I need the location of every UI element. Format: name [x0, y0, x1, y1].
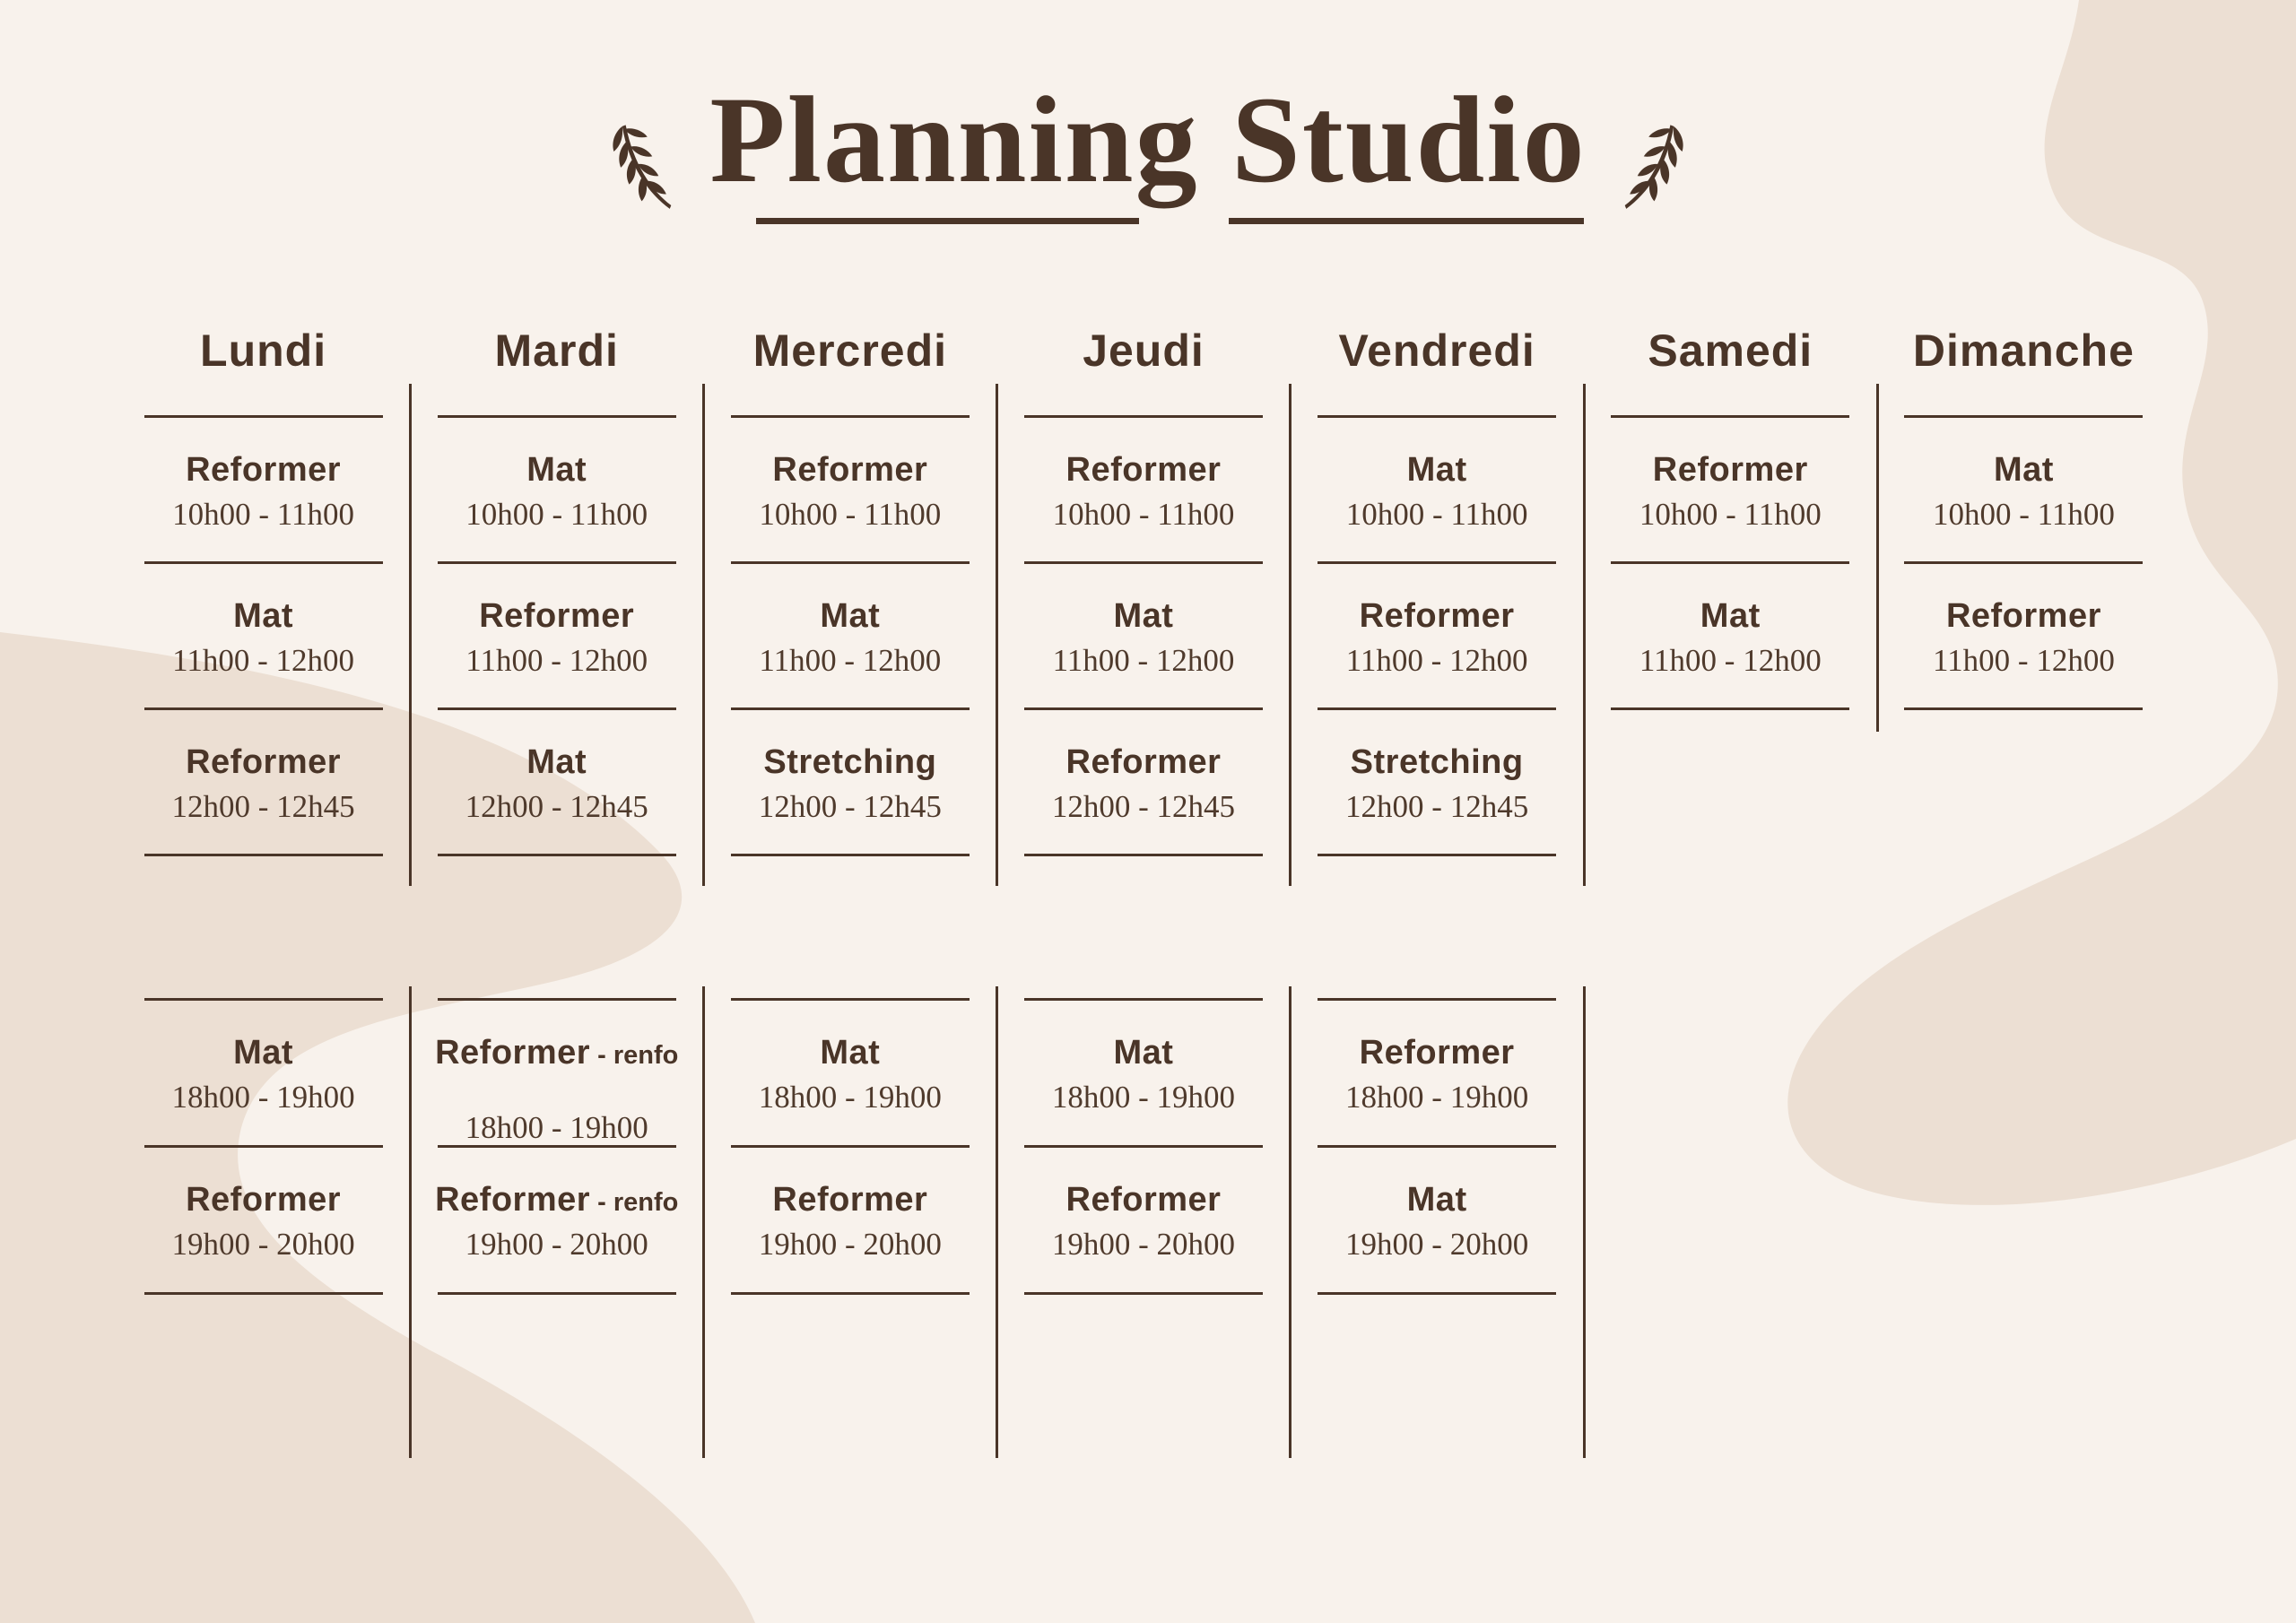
day-header-mardi: Mardi — [410, 325, 703, 377]
session-name: Reformer — [1946, 597, 2101, 635]
session-name-line: Reformer - renfo — [410, 1031, 703, 1074]
session-block: Mat11h00 - 12h00 — [703, 564, 996, 707]
session-name: Reformer — [1360, 1034, 1515, 1072]
session-block: Mat18h00 - 19h00 — [703, 1001, 996, 1145]
session-time: 11h00 - 12h00 — [1291, 641, 1584, 681]
session-name-suffix: - renfo — [590, 1041, 678, 1070]
session-name: Reformer — [772, 451, 927, 489]
session-name: Mat — [1994, 451, 2054, 489]
session-time: 10h00 - 11h00 — [703, 495, 996, 534]
day-column: Mat18h00 - 19h00Reformer19h00 - 20h00 — [703, 998, 996, 1295]
session-time: 11h00 - 12h00 — [117, 641, 410, 681]
planning-poster: Planning Studio LundiMardiMercrediJeudiV… — [0, 0, 2296, 1623]
session-name: Reformer — [186, 451, 341, 489]
day-column: Mat10h00 - 11h00Reformer11h00 - 12h00 — [1877, 415, 2170, 856]
separator-line — [731, 1292, 970, 1295]
day-header-mercredi: Mercredi — [703, 325, 996, 377]
separator-line — [438, 1292, 676, 1295]
session-name-line: Mat — [410, 448, 703, 491]
day-column: Mat18h00 - 19h00Reformer19h00 - 20h00 — [996, 998, 1290, 1295]
column-divider — [409, 986, 412, 1458]
session-block: Mat18h00 - 19h00 — [996, 1001, 1290, 1145]
title-underline-left — [756, 218, 1139, 224]
session-block: Reformer10h00 - 11h00 — [117, 418, 410, 561]
session-name-line: Reformer — [703, 1178, 996, 1221]
evening-schedule: Mat18h00 - 19h00Reformer19h00 - 20h00Ref… — [117, 998, 2170, 1295]
separator-line — [1024, 854, 1263, 856]
session-time: 11h00 - 12h00 — [703, 641, 996, 681]
separator-line — [1318, 854, 1556, 856]
session-block: Reformer11h00 - 12h00 — [1291, 564, 1584, 707]
session-block: Reformer11h00 - 12h00 — [1877, 564, 2170, 707]
separator-line — [1024, 1292, 1263, 1295]
session-time: 18h00 - 19h00 — [996, 1078, 1290, 1117]
session-name-line: Reformer - renfo — [410, 1178, 703, 1221]
session-name: Reformer — [1360, 597, 1515, 635]
day-column: Reformer18h00 - 19h00Mat19h00 - 20h00 — [1291, 998, 1584, 1295]
session-block: Mat11h00 - 12h00 — [996, 564, 1290, 707]
session-name-line: Reformer — [410, 595, 703, 638]
session-name-line: Stretching — [1291, 741, 1584, 784]
column-divider — [1289, 384, 1291, 886]
column-divider — [702, 384, 705, 886]
session-name: Mat — [233, 597, 293, 635]
session-time: 18h00 - 19h00 — [703, 1078, 996, 1117]
day-header-dimanche: Dimanche — [1877, 325, 2170, 377]
day-column: Reformer10h00 - 11h00Mat11h00 - 12h00 — [1584, 415, 1877, 856]
column-divider — [1289, 986, 1291, 1458]
day-header-vendredi: Vendredi — [1291, 325, 1584, 377]
session-name-line: Mat — [703, 595, 996, 638]
session-name: Reformer — [1066, 743, 1222, 781]
session-block: Stretching12h00 - 12h45 — [1291, 710, 1584, 854]
session-block: Mat19h00 - 20h00 — [1291, 1148, 1584, 1292]
session-name: Reformer — [479, 597, 634, 635]
session-name-line: Mat — [117, 1031, 410, 1074]
day-column — [1584, 998, 1877, 1295]
session-block: Reformer12h00 - 12h45 — [117, 710, 410, 854]
morning-schedule: Reformer10h00 - 11h00Mat11h00 - 12h00Ref… — [117, 415, 2170, 856]
day-header-samedi: Samedi — [1584, 325, 1877, 377]
session-name-line: Reformer — [996, 1178, 1290, 1221]
session-time: 12h00 - 12h45 — [703, 787, 996, 827]
separator-line — [144, 1292, 383, 1295]
separator-line — [1904, 707, 2143, 710]
session-name-line: Mat — [996, 1031, 1290, 1074]
session-name-line: Mat — [703, 1031, 996, 1074]
session-block: Stretching12h00 - 12h45 — [703, 710, 996, 854]
session-time: 12h00 - 12h45 — [996, 787, 1290, 827]
session-name: Reformer — [186, 1181, 341, 1219]
session-name: Mat — [820, 1034, 880, 1072]
page-title: Planning Studio — [709, 75, 1586, 205]
title-block: Planning Studio — [0, 75, 2296, 217]
day-column: Reformer10h00 - 11h00Mat11h00 - 12h00Ref… — [117, 415, 410, 856]
day-column: Reformer10h00 - 11h00Mat11h00 - 12h00Ref… — [996, 415, 1290, 856]
session-block: Reformer18h00 - 19h00 — [1291, 1001, 1584, 1145]
session-name-line: Reformer — [703, 448, 996, 491]
session-block: Reformer12h00 - 12h45 — [996, 710, 1290, 854]
session-block: Reformer - renfo18h00 - 19h00 — [410, 1001, 703, 1145]
separator-line — [1611, 707, 1849, 710]
session-time: 10h00 - 11h00 — [1291, 495, 1584, 534]
separator-line — [438, 854, 676, 856]
session-time: 10h00 - 11h00 — [1877, 495, 2170, 534]
column-divider — [702, 986, 705, 1458]
session-time: 10h00 - 11h00 — [996, 495, 1290, 534]
session-block: Mat12h00 - 12h45 — [410, 710, 703, 854]
session-name-line: Mat — [410, 741, 703, 784]
session-name-line: Reformer — [996, 448, 1290, 491]
session-name: Stretching — [1351, 743, 1524, 781]
session-name-line: Reformer — [1877, 595, 2170, 638]
session-name: Mat — [1114, 597, 1174, 635]
session-time: 10h00 - 11h00 — [117, 495, 410, 534]
session-time: 18h00 - 19h00 — [1291, 1078, 1584, 1117]
session-time: 19h00 - 20h00 — [996, 1225, 1290, 1264]
column-divider — [1876, 384, 1879, 732]
session-time: 11h00 - 12h00 — [1877, 641, 2170, 681]
session-name: Mat — [233, 1034, 293, 1072]
session-name-line: Mat — [117, 595, 410, 638]
session-block: Reformer - renfo19h00 - 20h00 — [410, 1148, 703, 1292]
session-time: 19h00 - 20h00 — [117, 1225, 410, 1264]
session-time: 19h00 - 20h00 — [703, 1225, 996, 1264]
day-header-lundi: Lundi — [117, 325, 410, 377]
column-divider — [996, 384, 998, 886]
column-divider — [1583, 384, 1586, 886]
session-block: Reformer10h00 - 11h00 — [703, 418, 996, 561]
title-underline-right — [1229, 218, 1584, 224]
session-block: Reformer10h00 - 11h00 — [1584, 418, 1877, 561]
separator-line — [731, 854, 970, 856]
session-time: 11h00 - 12h00 — [996, 641, 1290, 681]
session-time: 18h00 - 19h00 — [410, 1108, 703, 1148]
session-name: Reformer — [772, 1181, 927, 1219]
session-name: Reformer — [435, 1034, 590, 1072]
session-time: 11h00 - 12h00 — [410, 641, 703, 681]
session-name: Stretching — [763, 743, 936, 781]
column-divider — [1583, 986, 1586, 1458]
session-block: Reformer11h00 - 12h00 — [410, 564, 703, 707]
day-column: Reformer - renfo18h00 - 19h00Reformer - … — [410, 998, 703, 1295]
session-name-line: Mat — [1584, 595, 1877, 638]
session-name-line: Reformer — [117, 1178, 410, 1221]
day-header-jeudi: Jeudi — [996, 325, 1290, 377]
column-divider — [996, 986, 998, 1458]
session-name-line: Reformer — [117, 448, 410, 491]
session-block: Reformer19h00 - 20h00 — [703, 1148, 996, 1292]
day-column: Reformer10h00 - 11h00Mat11h00 - 12h00Str… — [703, 415, 996, 856]
day-column: Mat10h00 - 11h00Reformer11h00 - 12h00Str… — [1291, 415, 1584, 856]
session-time: 12h00 - 12h45 — [1291, 787, 1584, 827]
session-time: 19h00 - 20h00 — [1291, 1225, 1584, 1264]
session-name: Mat — [526, 451, 587, 489]
session-name-line: Mat — [1291, 448, 1584, 491]
session-time: 12h00 - 12h45 — [117, 787, 410, 827]
day-column: Mat18h00 - 19h00Reformer19h00 - 20h00 — [117, 998, 410, 1295]
session-name: Reformer — [435, 1181, 590, 1219]
session-time: 18h00 - 19h00 — [117, 1078, 410, 1117]
session-time: 12h00 - 12h45 — [410, 787, 703, 827]
session-block: Mat10h00 - 11h00 — [1877, 418, 2170, 561]
separator-line — [1318, 1292, 1556, 1295]
session-block: Mat10h00 - 11h00 — [1291, 418, 1584, 561]
session-name-line: Reformer — [996, 741, 1290, 784]
laurel-right-icon — [1621, 111, 1691, 217]
session-name: Mat — [1407, 451, 1467, 489]
session-block: Mat11h00 - 12h00 — [1584, 564, 1877, 707]
session-block: Mat10h00 - 11h00 — [410, 418, 703, 561]
session-name: Mat — [1114, 1034, 1174, 1072]
session-name-line: Reformer — [1291, 1031, 1584, 1074]
session-block: Reformer19h00 - 20h00 — [996, 1148, 1290, 1292]
session-block: Mat11h00 - 12h00 — [117, 564, 410, 707]
session-name-line: Reformer — [1291, 595, 1584, 638]
session-name-line: Stretching — [703, 741, 996, 784]
session-name: Mat — [820, 597, 880, 635]
session-time: 10h00 - 11h00 — [1584, 495, 1877, 534]
session-name-line: Reformer — [1584, 448, 1877, 491]
session-time: 10h00 - 11h00 — [410, 495, 703, 534]
session-name-line: Mat — [1291, 1178, 1584, 1221]
session-block: Reformer10h00 - 11h00 — [996, 418, 1290, 561]
session-name-line: Mat — [996, 595, 1290, 638]
day-column: Mat10h00 - 11h00Reformer11h00 - 12h00Mat… — [410, 415, 703, 856]
session-block: Mat18h00 - 19h00 — [117, 1001, 410, 1145]
session-name: Mat — [1407, 1181, 1467, 1219]
session-block: Reformer19h00 - 20h00 — [117, 1148, 410, 1292]
session-name: Reformer — [1066, 451, 1222, 489]
column-divider — [409, 384, 412, 886]
laurel-left-icon — [605, 111, 675, 217]
session-name: Mat — [1700, 597, 1761, 635]
session-name-suffix: - renfo — [590, 1188, 678, 1217]
day-headers-row: LundiMardiMercrediJeudiVendrediSamediDim… — [117, 325, 2170, 377]
session-name: Reformer — [186, 743, 341, 781]
session-name-line: Reformer — [117, 741, 410, 784]
session-name: Reformer — [1653, 451, 1808, 489]
session-name: Reformer — [1066, 1181, 1222, 1219]
session-time: 19h00 - 20h00 — [410, 1225, 703, 1264]
separator-line — [144, 854, 383, 856]
session-time: 11h00 - 12h00 — [1584, 641, 1877, 681]
day-column — [1877, 998, 2170, 1295]
session-name: Mat — [526, 743, 587, 781]
session-name-line: Mat — [1877, 448, 2170, 491]
